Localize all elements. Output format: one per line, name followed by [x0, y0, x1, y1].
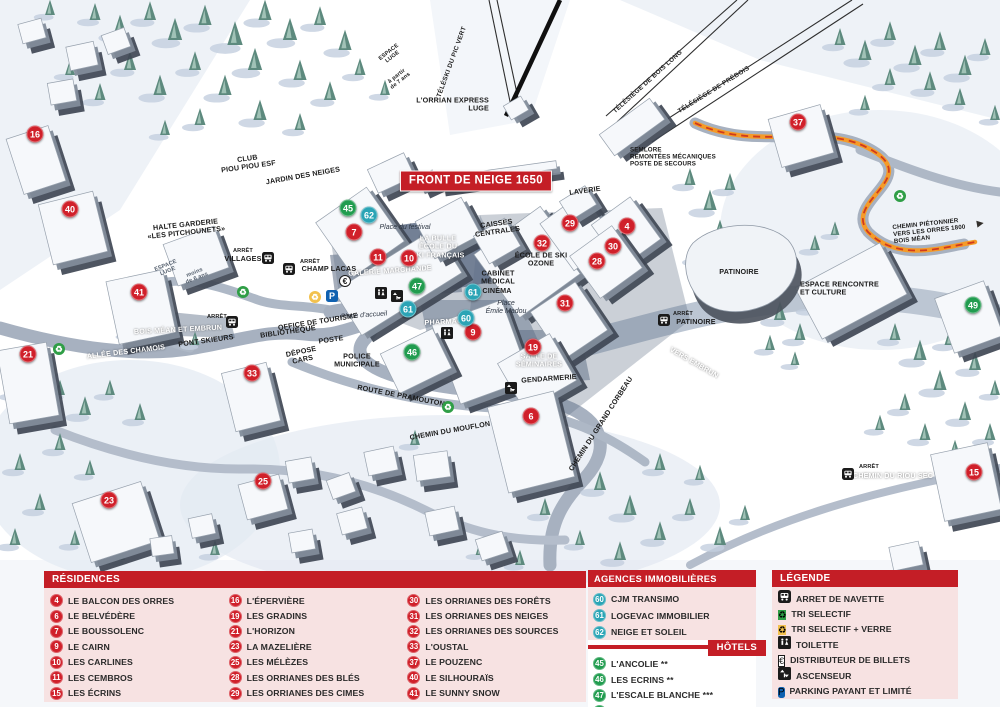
legende-panel: LÉGENDE ARRET DE NAVETTE♻TRI SELECTIF♻TR… — [772, 570, 958, 699]
legende-label: TRI SELECTIF — [791, 609, 851, 619]
map-marker-30: 30 — [605, 238, 622, 255]
map-marker-23: 23 — [101, 492, 118, 509]
residence-label: LE BALCON DES ORRES — [68, 596, 174, 606]
toilet-icon — [441, 327, 453, 339]
map-marker-4: 4 — [619, 218, 636, 235]
residence-item-30: 30LES ORRIANES DES FORÊTS — [407, 593, 586, 608]
agences-panel: AGENCES IMMOBILIÈRES 60CJM TRANSIMO61LOG… — [588, 570, 756, 707]
residence-item-6: 6LE BELVÉDÈRE — [50, 608, 229, 623]
map-marker-60: 60 — [458, 310, 475, 327]
residences-header: RÉSIDENCES — [44, 571, 586, 588]
euro-icon: € — [339, 275, 351, 287]
legende-label: ARRET DE NAVETTE — [796, 594, 884, 604]
residence-label: LES ORRIANES DES FORÊTS — [425, 596, 550, 606]
number-badge: 62 — [593, 626, 606, 639]
number-badge: 21 — [229, 625, 242, 638]
map-icon-wrap: ♻ — [309, 291, 321, 303]
residence-label: LE BELVÉDÈRE — [68, 611, 135, 621]
number-badge: 16 — [229, 594, 242, 607]
map-marker-45: 45 — [340, 200, 357, 217]
legende-header: LÉGENDE — [772, 570, 958, 587]
map-icon-wrap: ♻ — [894, 190, 906, 202]
map-marker-16: 16 — [27, 126, 44, 143]
hotels-header: HÔTELS — [708, 640, 766, 656]
number-badge: 10 — [50, 656, 63, 669]
bus-icon — [658, 314, 670, 326]
number-badge: 30 — [407, 594, 420, 607]
agences-list: 60CJM TRANSIMO61LOGEVAC IMMOBILIER62NEIG… — [588, 587, 756, 640]
residence-item-11: 11LES CEMBROS — [50, 670, 229, 685]
agences-header: AGENCES IMMOBILIÈRES — [588, 570, 756, 587]
map-marker-11: 11 — [370, 249, 387, 266]
number-badge: 7 — [50, 625, 63, 638]
residence-label: LES ORRIANES DES BLÉS — [247, 673, 360, 683]
bus-icon — [283, 263, 295, 275]
map-icon-wrap — [391, 290, 403, 302]
legende-item: TOILETTE — [778, 637, 958, 652]
map-marker-49: 49 — [965, 297, 982, 314]
map-marker-7: 7 — [346, 224, 363, 241]
residence-item-31: 31LES ORRIANES DES NEIGES — [407, 608, 586, 623]
parking-icon: P — [778, 682, 785, 700]
map-marker-47: 47 — [409, 278, 426, 295]
agence-label: CJM TRANSIMO — [611, 594, 679, 604]
number-badge: 25 — [229, 656, 242, 669]
residence-item-32: 32LES ORRIANES DES SOURCES — [407, 624, 586, 639]
map-icon-wrap — [658, 314, 670, 326]
map-marker-15: 15 — [966, 464, 983, 481]
agence-label: NEIGE ET SOLEIL — [611, 627, 687, 637]
number-badge: 29 — [229, 687, 242, 700]
map-marker-41: 41 — [131, 284, 148, 301]
map-icon-wrap — [375, 287, 387, 299]
map-icon-wrap: € — [339, 275, 351, 287]
resort-map-page: CLUB PIOU PIOU ESFJARDIN DES NEIGESESPAC… — [0, 0, 1000, 707]
residence-item-4: 4LE BALCON DES ORRES — [50, 593, 229, 608]
agence-label: LOGEVAC IMMOBILIER — [611, 611, 710, 621]
residence-label: LE SUNNY SNOW — [425, 688, 500, 698]
residence-label: L'ÉPERVIÈRE — [247, 596, 305, 606]
elevator-icon — [391, 290, 403, 302]
residence-label: LES MÉLÈZES — [247, 657, 308, 667]
residences-panel: RÉSIDENCES 4LE BALCON DES ORRES6LE BELVÉ… — [44, 571, 586, 702]
number-badge: 9 — [50, 640, 63, 653]
elevator-icon — [505, 382, 517, 394]
map-icon-wrap — [262, 252, 274, 264]
residence-label: LES GRADINS — [247, 611, 307, 621]
legende-list: ARRET DE NAVETTE♻TRI SELECTIF♻TRI SELECT… — [772, 587, 958, 699]
residence-label: LE POUZENC — [425, 657, 482, 667]
legende-label: TOILETTE — [796, 640, 839, 650]
residence-label: LES ORRIANES DES SOURCES — [425, 626, 558, 636]
legende-label: TRI SELECTIF + VERRE — [791, 624, 891, 634]
number-badge: 4 — [50, 594, 63, 607]
number-badge: 45 — [593, 657, 606, 670]
map-marker-33: 33 — [244, 365, 261, 382]
number-badge: 46 — [593, 673, 606, 686]
recycle-green-icon: ♻ — [442, 401, 454, 413]
residence-item-19: 19LES GRADINS — [229, 608, 408, 623]
number-badge: 11 — [50, 671, 63, 684]
number-badge: 15 — [50, 687, 63, 700]
hotel-item-47: 47L'ESCALE BLANCHE *** — [593, 688, 756, 704]
residence-item-29: 29LES ORRIANES DES CIMES — [229, 685, 408, 700]
parking-icon: P — [326, 290, 338, 302]
residence-item-41: 41LE SUNNY SNOW — [407, 685, 586, 700]
legende-item: €DISTRIBUTEUR DE BILLETS — [778, 653, 958, 668]
map-marker-40: 40 — [62, 201, 79, 218]
number-badge: 41 — [407, 687, 420, 700]
residence-label: L'OUSTAL — [425, 642, 468, 652]
residence-item-28: 28LES ORRIANES DES BLÉS — [229, 670, 408, 685]
hotels-divider: HÔTELS — [588, 640, 756, 654]
residence-item-40: 40LE SILHOURAÏS — [407, 670, 586, 685]
recycle-green-icon: ♻ — [237, 286, 249, 298]
map-marker-46: 46 — [404, 344, 421, 361]
agence-item-61: 61LOGEVAC IMMOBILIER — [593, 608, 756, 625]
bus-icon — [226, 316, 238, 328]
residence-item-21: 21L'HORIZON — [229, 624, 408, 639]
legende-label: PARKING PAYANT ET LIMITÉ — [790, 686, 912, 696]
residence-label: LES CEMBROS — [68, 673, 133, 683]
number-badge: 28 — [229, 671, 242, 684]
map-marker-61: 61 — [400, 301, 417, 318]
number-badge: 6 — [50, 610, 63, 623]
map-icon-wrap: ♻ — [442, 401, 454, 413]
number-badge: 61 — [593, 609, 606, 622]
legende-item: ARRET DE NAVETTE — [778, 591, 958, 606]
recycle-green-icon: ♻ — [53, 343, 65, 355]
hotel-label: L'ESCALE BLANCHE *** — [611, 690, 713, 700]
number-badge: 32 — [407, 625, 420, 638]
map-icon-wrap — [226, 316, 238, 328]
map-icon-wrap: ♻ — [53, 343, 65, 355]
hotels-list: 45L'ANCOLIE **46LES ECRINS **47L'ESCALE … — [588, 654, 756, 707]
residence-label: LES CARLINES — [68, 657, 133, 667]
hotels-divider-bar — [588, 645, 708, 649]
map-marker-37: 37 — [790, 114, 807, 131]
map-icon-wrap — [505, 382, 517, 394]
map-marker-21: 21 — [20, 346, 37, 363]
bus-icon — [262, 252, 274, 264]
map-marker-61: 61 — [465, 284, 482, 301]
residence-label: LES ORRIANES DES NEIGES — [425, 611, 548, 621]
residences-list: 4LE BALCON DES ORRES6LE BELVÉDÈRE7LE BOU… — [44, 588, 586, 702]
legende-item: PPARKING PAYANT ET LIMITÉ — [778, 683, 958, 698]
map-marker-29: 29 — [562, 215, 579, 232]
map-marker-31: 31 — [557, 295, 574, 312]
map-icon-wrap: ♻ — [237, 286, 249, 298]
bus-icon — [842, 468, 854, 480]
recycle-green-icon: ♻ — [894, 190, 906, 202]
hotel-item-45: 45L'ANCOLIE ** — [593, 656, 756, 672]
legende-label: ASCENSEUR — [796, 671, 851, 681]
map-marker-62: 62 — [361, 207, 378, 224]
number-badge: 60 — [593, 593, 606, 606]
residence-item-9: 9LE CAIRN — [50, 639, 229, 654]
residence-item-23: 23LA MAZELIÈRE — [229, 639, 408, 654]
number-badge: 31 — [407, 610, 420, 623]
toilet-icon — [375, 287, 387, 299]
residence-item-7: 7LE BOUSSOLENC — [50, 624, 229, 639]
map-icon-wrap — [283, 263, 295, 275]
number-badge: 47 — [593, 689, 606, 702]
map-icon-wrap — [842, 468, 854, 480]
number-badge: 23 — [229, 640, 242, 653]
map-marker-28: 28 — [589, 253, 606, 270]
hotel-item-49: 49LES TRAPPEURS ** — [593, 703, 756, 707]
number-badge: 19 — [229, 610, 242, 623]
map-marker-6: 6 — [523, 408, 540, 425]
number-badge: 33 — [407, 640, 420, 653]
residence-label: LE CAIRN — [68, 642, 110, 652]
number-badge: 37 — [407, 656, 420, 669]
front-de-neige-badge: FRONT DE NEIGE 1650 — [400, 171, 552, 192]
residence-label: LES ÉCRINS — [68, 688, 121, 698]
legende-label: DISTRIBUTEUR DE BILLETS — [790, 655, 910, 665]
legende-item: ♻TRI SELECTIF — [778, 606, 958, 621]
hotel-label: L'ANCOLIE ** — [611, 659, 668, 669]
legende-item: ♻TRI SELECTIF + VERRE — [778, 622, 958, 637]
residence-item-10: 10LES CARLINES — [50, 655, 229, 670]
map-marker-19: 19 — [525, 339, 542, 356]
residence-item-16: 16L'ÉPERVIÈRE — [229, 593, 408, 608]
agence-item-62: 62NEIGE ET SOLEIL — [593, 624, 756, 641]
map-marker-10: 10 — [401, 250, 418, 267]
recycle-yellow-icon: ♻ — [309, 291, 321, 303]
number-badge: 40 — [407, 671, 420, 684]
residence-item-15: 15LES ÉCRINS — [50, 685, 229, 700]
residence-label: LE BOUSSOLENC — [68, 626, 144, 636]
map-marker-32: 32 — [534, 235, 551, 252]
map-marker-25: 25 — [255, 473, 272, 490]
legende-item: ASCENSEUR — [778, 668, 958, 683]
residence-label: L'HORIZON — [247, 626, 295, 636]
residence-label: LE SILHOURAÏS — [425, 673, 493, 683]
map-icon-wrap: P — [326, 290, 338, 302]
hotel-item-46: 46LES ECRINS ** — [593, 672, 756, 688]
residence-item-33: 33L'OUSTAL — [407, 639, 586, 654]
residence-item-25: 25LES MÉLÈZES — [229, 655, 408, 670]
residence-label: LA MAZELIÈRE — [247, 642, 312, 652]
residence-label: LES ORRIANES DES CIMES — [247, 688, 365, 698]
map-icon-wrap — [441, 327, 453, 339]
residence-item-37: 37LE POUZENC — [407, 655, 586, 670]
hotel-label: LES ECRINS ** — [611, 675, 674, 685]
agence-item-60: 60CJM TRANSIMO — [593, 591, 756, 608]
